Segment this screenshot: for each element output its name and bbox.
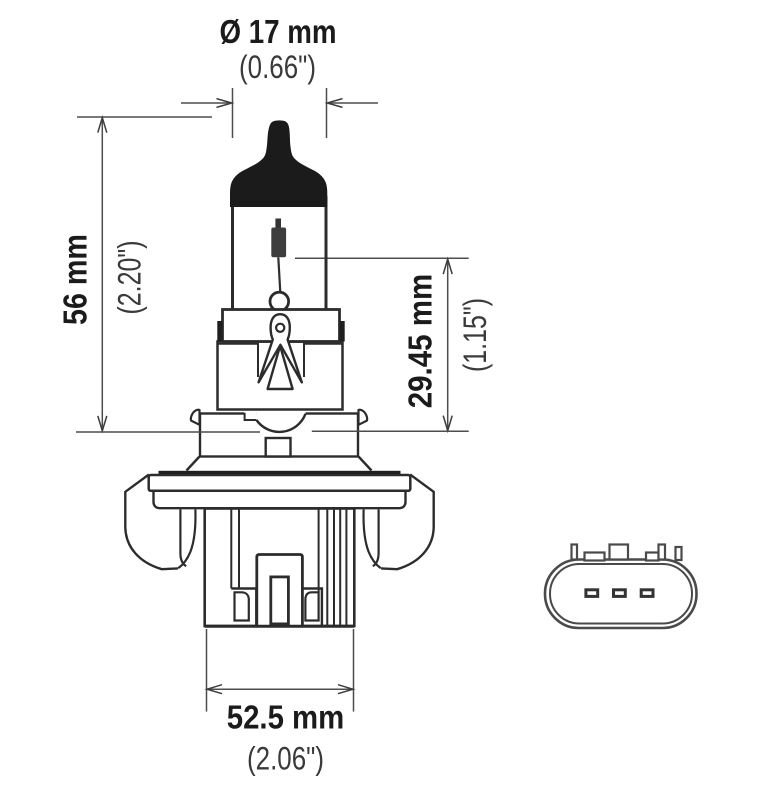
svg-text:56 mm: 56 mm (57, 234, 94, 325)
svg-text:52.5 mm: 52.5 mm (227, 699, 344, 736)
svg-text:(0.66"): (0.66") (239, 51, 316, 86)
svg-text:29.45 mm: 29.45 mm (402, 274, 439, 409)
svg-text:Ø 17 mm: Ø 17 mm (219, 14, 336, 51)
svg-text:(2.20"): (2.20") (113, 240, 149, 314)
svg-text:(1.15"): (1.15") (458, 298, 494, 372)
svg-text:(2.06"): (2.06") (247, 742, 324, 777)
